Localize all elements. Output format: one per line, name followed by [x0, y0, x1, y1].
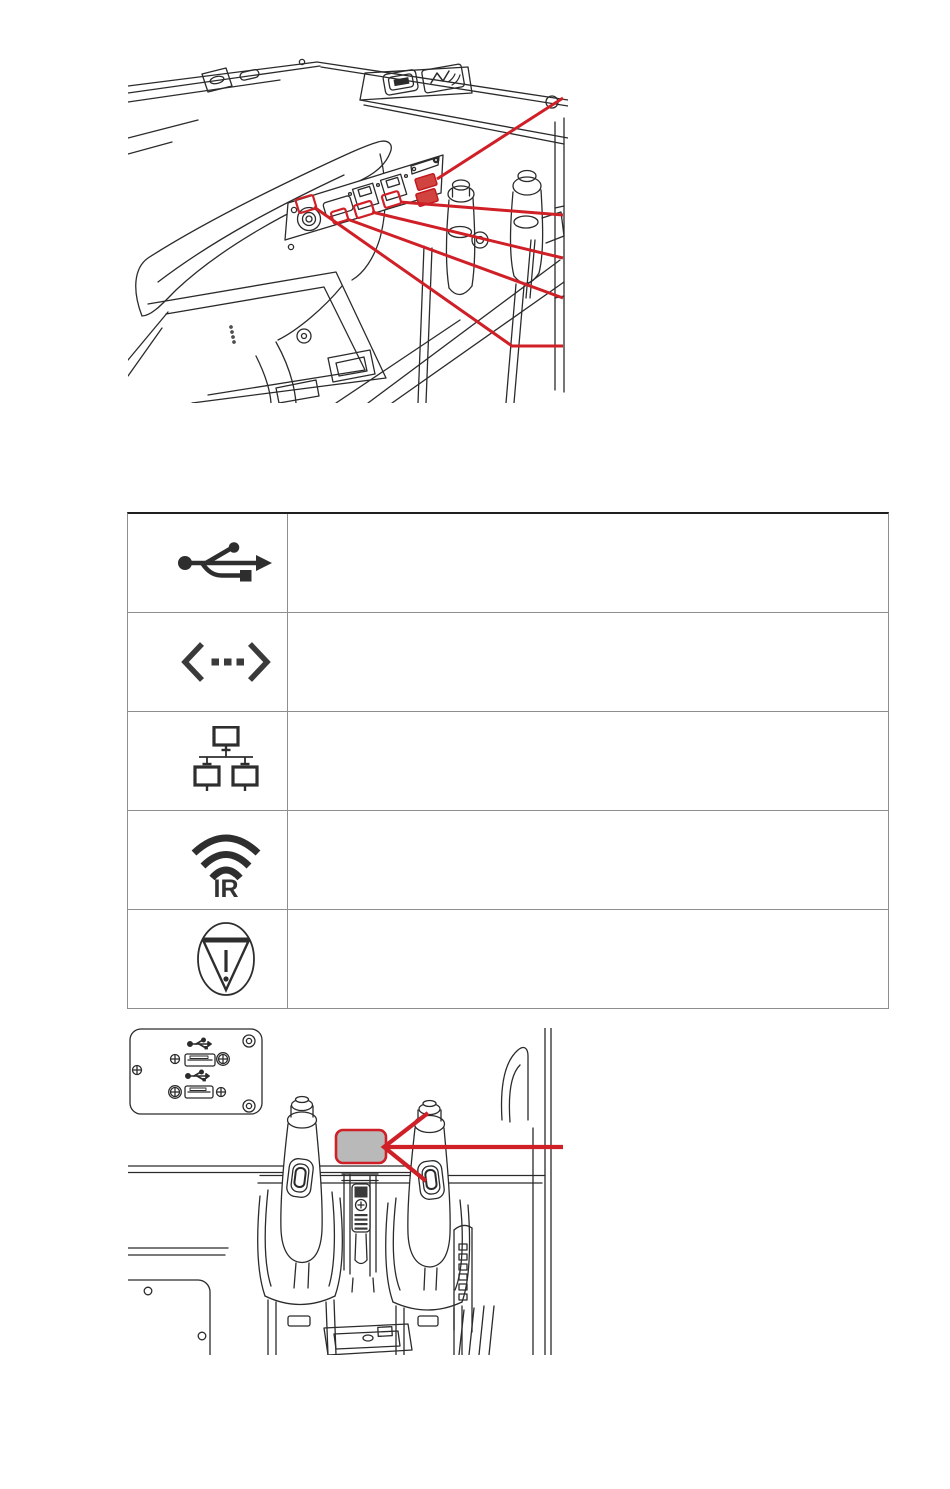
callout-line-2 — [400, 202, 563, 215]
symbol-description — [288, 811, 888, 909]
left-grip — [281, 1097, 322, 1289]
symbol-description — [288, 910, 888, 1008]
usb-panel — [130, 1029, 262, 1114]
center-clutch-column — [342, 1174, 378, 1292]
caution-icon-cell — [128, 910, 288, 1008]
ir-label: IR — [213, 875, 238, 899]
callout-line-1 — [437, 98, 563, 179]
callout-line-3 — [372, 212, 563, 258]
right-grip — [408, 1101, 450, 1291]
table-row: IR — [128, 810, 888, 909]
symbol-description — [288, 712, 888, 810]
console-grips-line-drawing — [128, 1028, 565, 1355]
infrared-icon: IR — [188, 821, 264, 899]
symbol-description — [288, 613, 888, 711]
usb-icon-cell — [128, 514, 288, 612]
table-row — [128, 514, 888, 612]
bidirectional-arrow-icon — [180, 641, 272, 683]
console-rear-line-drawing — [128, 58, 568, 403]
symbol-description — [288, 514, 888, 612]
table-row — [128, 612, 888, 711]
caution-stop-icon — [194, 920, 258, 998]
table-row — [128, 909, 888, 1008]
document-page: IR — [0, 0, 950, 1489]
symbols-table: IR — [127, 512, 889, 1009]
network-icon-cell — [128, 712, 288, 810]
callout-arrow — [384, 1113, 563, 1181]
usb-icon — [174, 537, 278, 589]
table-row — [128, 711, 888, 810]
grips-line-art — [128, 1028, 551, 1355]
infrared-icon-cell: IR — [128, 811, 288, 909]
arrow-icon-cell — [128, 613, 288, 711]
network-icon — [191, 726, 261, 796]
grey-label-highlight — [336, 1130, 386, 1163]
figure-console-grips — [128, 1028, 565, 1355]
figure-console-connectivity-panel — [128, 58, 568, 403]
